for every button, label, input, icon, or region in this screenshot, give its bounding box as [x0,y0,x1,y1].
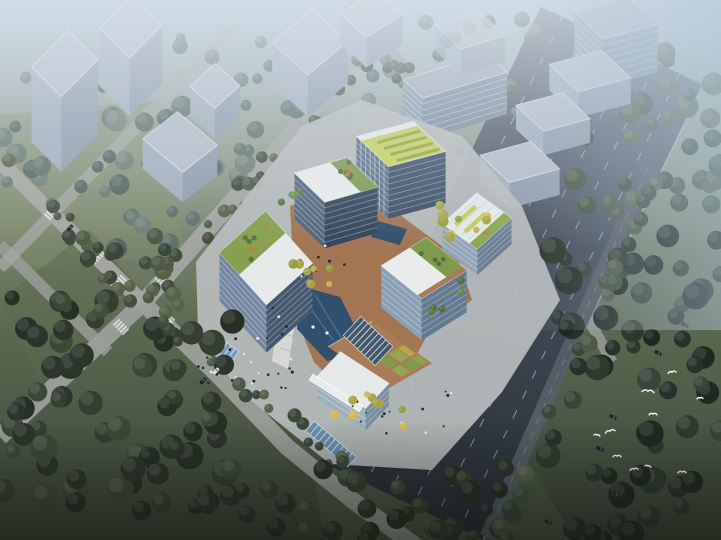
tree-highlight [95,304,103,312]
tree-highlight [660,382,670,392]
tree-highlight [96,290,109,303]
tree-highlight [289,260,294,265]
person-dot [266,337,268,339]
rendering-scene [0,0,721,540]
tree-highlight [80,392,93,405]
tree-highlight [140,257,147,264]
tree-highlight [55,294,65,304]
tree-highlight [17,318,30,331]
tree-highlight [606,341,614,349]
person-dot [297,270,299,272]
tree-highlight [429,309,433,313]
tree-highlight [289,409,297,417]
person-dot [389,411,391,413]
person-dot [445,391,447,393]
person-dot [252,380,255,383]
tree-highlight [458,277,462,281]
roof-dot [249,257,254,262]
person-dot [291,370,294,373]
tree-highlight [265,404,270,409]
tree-highlight [307,280,312,285]
tree-highlight [168,391,176,399]
person-dot [381,415,383,417]
tree-highlight [430,304,434,308]
tree-highlight [215,355,226,366]
tree-highlight [349,411,354,416]
tree-highlight [675,332,684,341]
tree-highlight [98,274,104,280]
tree-highlight [173,300,180,307]
tree-highlight [222,311,235,324]
person-dot [202,367,205,370]
bottom-vignette [0,420,721,540]
person-dot [251,382,253,384]
tree-highlight [399,406,403,410]
person-dot [317,256,320,259]
tree-highlight [240,390,247,397]
person-dot [365,412,367,414]
tree-highlight [143,292,149,298]
person-dot [243,353,245,355]
tree-highlight [6,291,14,299]
right-haze [520,0,721,330]
person-dot [210,370,213,373]
tree-highlight [52,392,61,401]
tree-highlight [565,392,575,402]
tree-highlight [29,383,40,394]
tree-highlight [162,280,169,287]
person-dot [281,333,284,336]
tree-highlight [134,358,145,369]
tree-highlight [125,295,132,302]
person-dot [290,358,292,360]
tree-highlight [349,396,354,401]
tree-highlight [233,378,240,385]
tree-highlight [81,251,90,260]
tree-highlight [260,390,265,395]
person-dot [383,412,386,415]
tree-highlight [331,410,336,415]
person-dot [271,307,273,309]
person-dot [228,348,231,351]
tree-highlight [71,344,84,357]
tree-highlight [439,306,443,310]
tree-highlight [203,413,211,421]
tree-highlight [373,399,378,404]
tree-highlight [573,343,580,350]
tree-highlight [171,360,181,370]
aerial-rendering-image [0,0,721,540]
person-dot [277,315,280,318]
person-dot [450,392,452,394]
tree-highlight [207,358,212,363]
tree-highlight [55,321,66,332]
tree-highlight [125,281,131,287]
tree-highlight [543,405,551,413]
fountain-jet [325,331,328,334]
tree-highlight [688,357,697,366]
person-dot [446,394,449,397]
tree-highlight [253,391,258,396]
person-dot [285,325,288,328]
person-dot [258,372,260,374]
tree-highlight [28,326,40,338]
tree-highlight [458,289,462,293]
roof-dot [441,257,446,262]
fountain-jet [311,325,314,328]
tree-highlight [639,369,652,382]
tree-highlight [304,268,308,272]
person-dot [280,386,282,388]
tree-highlight [174,337,179,342]
person-dot [343,263,346,266]
roof-dot [419,251,424,256]
tree-highlight [695,377,703,385]
tree-highlight [159,316,165,322]
tree-highlight [181,322,194,335]
person-dot [352,405,354,407]
person-dot [362,397,364,399]
person-dot [197,365,200,368]
tree-highlight [201,331,215,345]
person-dot [250,361,252,363]
tree-highlight [364,392,367,395]
tree-highlight [581,336,591,346]
person-dot [288,367,290,369]
person-dot [207,381,210,384]
tree-highlight [43,357,56,370]
person-dot [267,373,270,376]
tree-highlight [151,256,160,265]
person-dot [300,275,302,277]
person-dot [285,387,287,389]
tree-highlight [8,404,18,414]
tree-highlight [326,265,330,269]
person-dot [421,408,424,411]
person-dot [277,373,279,375]
person-dot [234,337,237,340]
tree-highlight [167,287,176,296]
tree-highlight [311,266,315,270]
tree-highlight [586,356,600,370]
tree-highlight [203,393,214,404]
roof-dot [436,261,441,266]
tree-highlight [327,281,330,284]
person-dot [206,356,208,358]
tree-highlight [147,284,154,291]
tree-highlight [571,359,581,369]
roof-dot [433,257,438,262]
tree-highlight [160,306,168,314]
tree-highlight [644,330,653,339]
person-dot [328,260,331,263]
person-dot [256,337,259,340]
tree-highlight [112,283,120,291]
